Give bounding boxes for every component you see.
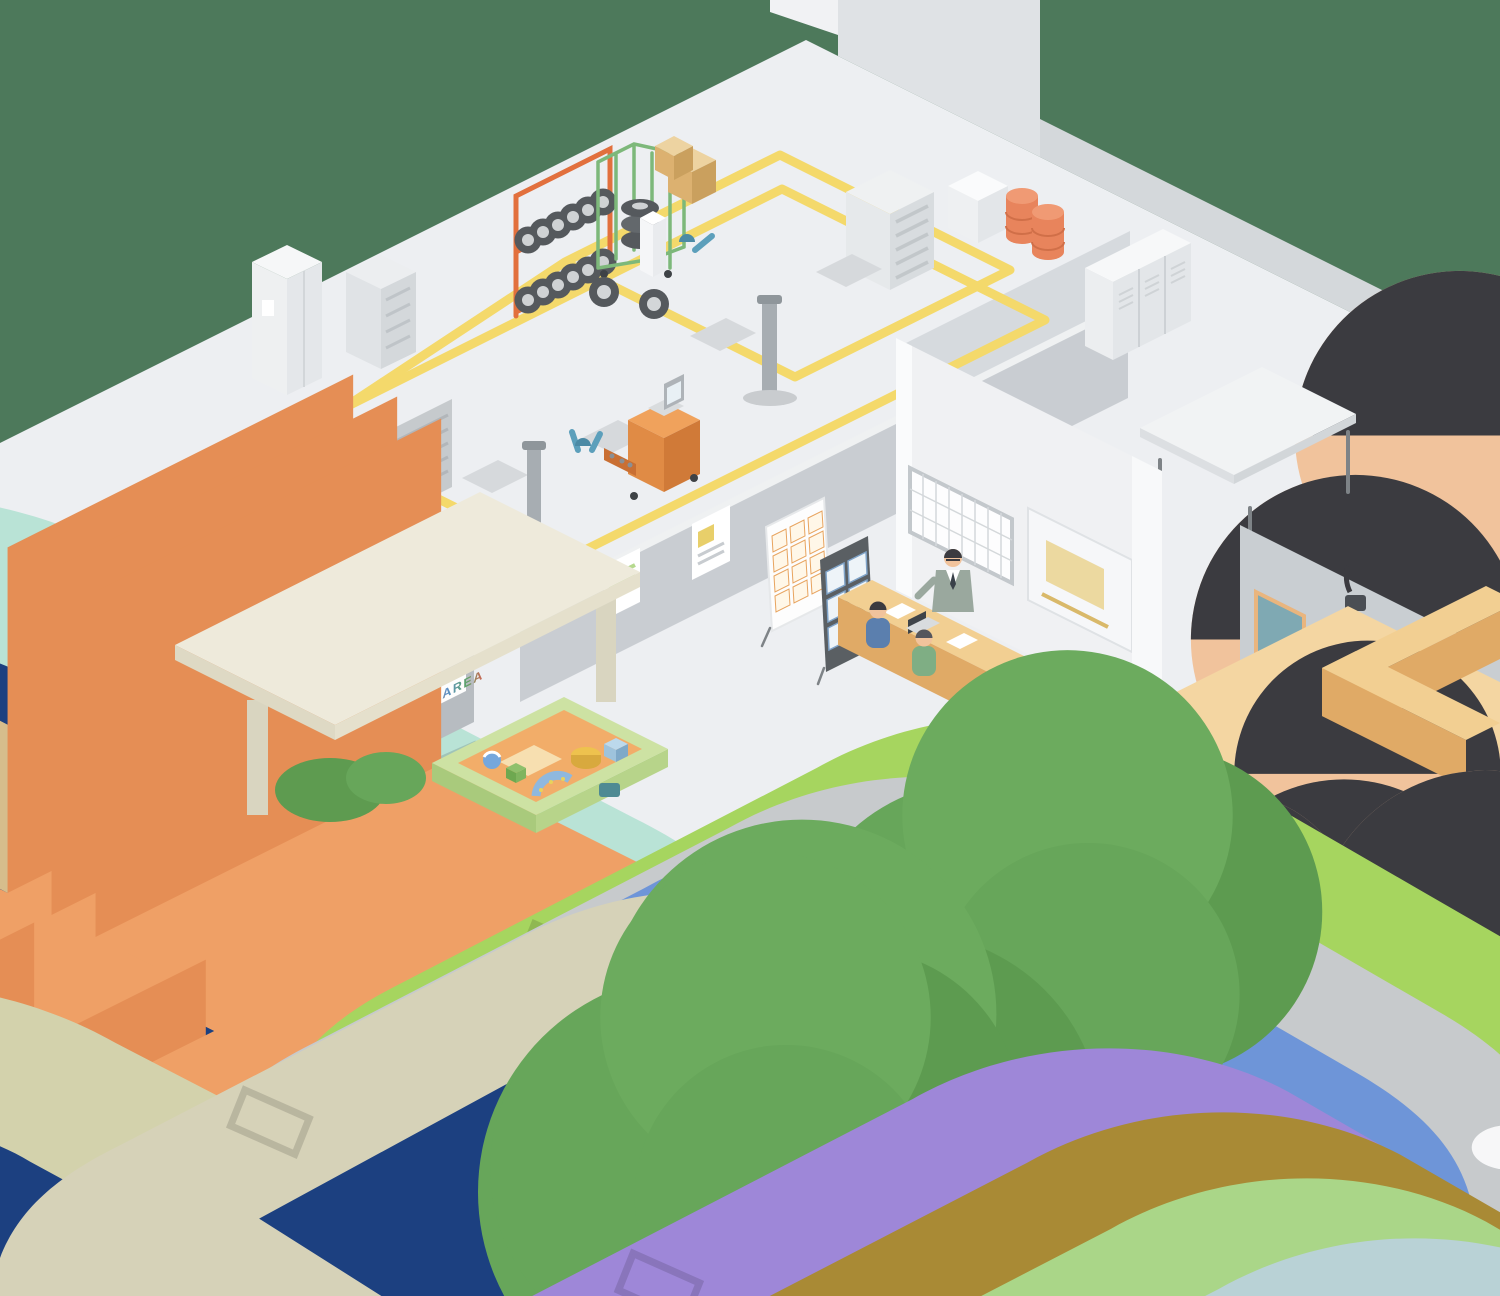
dealership-illustration: KIDS AREA bbox=[0, 0, 1500, 1296]
supply-crate bbox=[948, 171, 1008, 243]
white-parts-box bbox=[640, 211, 666, 277]
tall-white-cabinet bbox=[252, 245, 322, 395]
gray-drawer-cabinet bbox=[346, 255, 416, 369]
lift-post bbox=[762, 300, 777, 394]
